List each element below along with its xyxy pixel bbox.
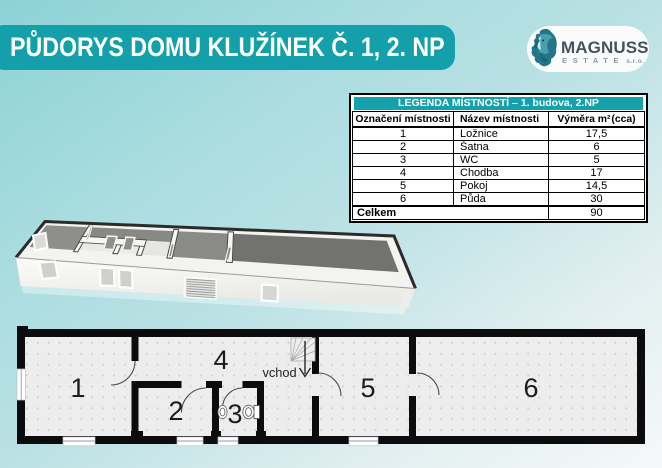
svg-text:2: 2 — [168, 396, 183, 426]
svg-text:6: 6 — [523, 373, 538, 403]
svg-text:vchod: vchod — [263, 365, 297, 380]
svg-text:3: 3 — [227, 399, 242, 429]
svg-text:5: 5 — [360, 373, 375, 403]
svg-text:1: 1 — [70, 373, 85, 403]
svg-text:4: 4 — [213, 345, 228, 375]
